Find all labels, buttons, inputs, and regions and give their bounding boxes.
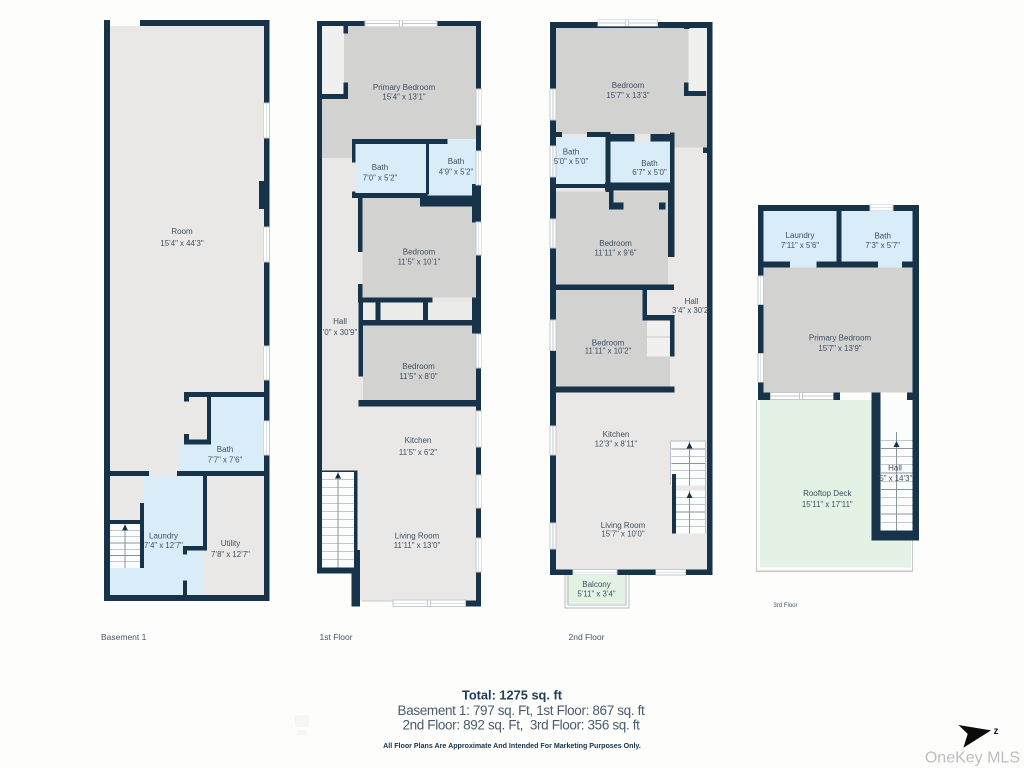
svg-text:12’3" x 8’11": 12’3" x 8’11"	[595, 440, 638, 449]
svg-text:11’5" x 6’2": 11’5" x 6’2"	[399, 448, 438, 457]
svg-text:7’0" x 5’2": 7’0" x 5’2"	[363, 174, 398, 183]
svg-text:11’5" x 8’0": 11’5" x 8’0"	[399, 372, 438, 381]
svg-text:Primary Bedroom: Primary Bedroom	[373, 83, 436, 92]
svg-text:15’11" x 17’11": 15’11" x 17’11"	[802, 500, 853, 509]
svg-text:4’9" x 5’2": 4’9" x 5’2"	[439, 168, 474, 177]
svg-text:15’7" x 13’3": 15’7" x 13’3"	[606, 91, 649, 100]
svg-text:3rd Floor: 3rd Floor	[774, 603, 798, 609]
svg-text:Bath: Bath	[641, 159, 657, 168]
svg-text:Bedroom: Bedroom	[612, 81, 645, 90]
svg-text:5’0" x 5’0": 5’0" x 5’0"	[554, 157, 589, 166]
svg-text:Bedroom: Bedroom	[402, 362, 435, 371]
svg-text:15’7" x 10’0": 15’7" x 10’0"	[601, 530, 644, 539]
svg-text:1st Floor: 1st Floor	[320, 632, 353, 642]
svg-text:Rooftop Deck: Rooftop Deck	[803, 489, 852, 498]
svg-text:Balcony: Balcony	[582, 580, 610, 589]
svg-text:Hall: Hall	[888, 464, 902, 473]
svg-text:Basement 1: 797 sq. Ft, 1st Fl: Basement 1: 797 sq. Ft, 1st Floor: 867 s…	[398, 703, 645, 718]
svg-text:Hall: Hall	[685, 297, 699, 306]
svg-text:Laundry: Laundry	[149, 532, 178, 541]
svg-text:’5" x 14’3": ’5" x 14’3"	[878, 474, 913, 483]
svg-text:Utility: Utility	[221, 539, 241, 548]
svg-text:7’4" x 12’7": 7’4" x 12’7"	[144, 541, 183, 550]
svg-text:7’3" x 5’7": 7’3" x 5’7"	[865, 241, 900, 250]
svg-text:3’4" x 30’2": 3’4" x 30’2"	[672, 306, 711, 315]
svg-text:11’11" x 9’6": 11’11" x 9’6"	[594, 249, 636, 258]
svg-text:Bedroom: Bedroom	[403, 248, 436, 257]
svg-text:15’4" x 44’3": 15’4" x 44’3"	[160, 239, 203, 248]
svg-text:2nd Floor: 892 sq. Ft, 3rd Fl: 2nd Floor: 892 sq. Ft, 3rd Floor: 356 sq…	[402, 718, 640, 733]
svg-text:z: z	[994, 726, 999, 737]
svg-text:Hall: Hall	[333, 317, 347, 326]
svg-text:Laundry: Laundry	[786, 231, 815, 240]
svg-text:7’8" x 12’7": 7’8" x 12’7"	[211, 550, 250, 559]
svg-text:OneKey MLS: OneKey MLS	[925, 750, 1020, 767]
svg-text:11’11" x 10’2": 11’11" x 10’2"	[585, 347, 632, 356]
svg-text:11’5" x 10’1": 11’5" x 10’1"	[398, 258, 441, 267]
svg-text:All Floor Plans Are Approximat: All Floor Plans Are Approximate And Inte…	[383, 742, 641, 750]
svg-text:15’7" x 13’9": 15’7" x 13’9"	[818, 344, 861, 353]
svg-text:’0" x 30’9": ’0" x 30’9"	[323, 328, 358, 337]
svg-text:7’11" x 5’6": 7’11" x 5’6"	[781, 241, 820, 250]
svg-text:Room: Room	[171, 227, 193, 236]
svg-text:Kitchen: Kitchen	[405, 436, 432, 445]
svg-text:15’4" x 13’1": 15’4" x 13’1"	[382, 93, 425, 102]
svg-text:11’11" x 13’0": 11’11" x 13’0"	[394, 541, 441, 550]
svg-text:Kitchen: Kitchen	[603, 430, 630, 439]
svg-text:Primary Bedroom: Primary Bedroom	[809, 334, 872, 343]
svg-text:Bath: Bath	[874, 232, 890, 241]
svg-text:2nd Floor: 2nd Floor	[569, 632, 605, 642]
svg-text:Bath: Bath	[372, 163, 388, 172]
svg-text:Bath: Bath	[217, 445, 233, 454]
svg-text:Bedroom: Bedroom	[599, 239, 632, 248]
svg-text:6’7" x 5’0": 6’7" x 5’0"	[632, 168, 667, 177]
svg-text:Living Room: Living Room	[395, 532, 440, 541]
svg-text:7’7" x 7’6": 7’7" x 7’6"	[208, 456, 243, 465]
svg-text:Total: 1275 sq. ft: Total: 1275 sq. ft	[462, 688, 563, 703]
svg-text:Bath: Bath	[448, 157, 464, 166]
svg-text:Bath: Bath	[563, 148, 579, 157]
svg-text:5’11" x 3’4": 5’11" x 3’4"	[577, 590, 616, 599]
svg-text:Basement 1: Basement 1	[101, 632, 147, 642]
